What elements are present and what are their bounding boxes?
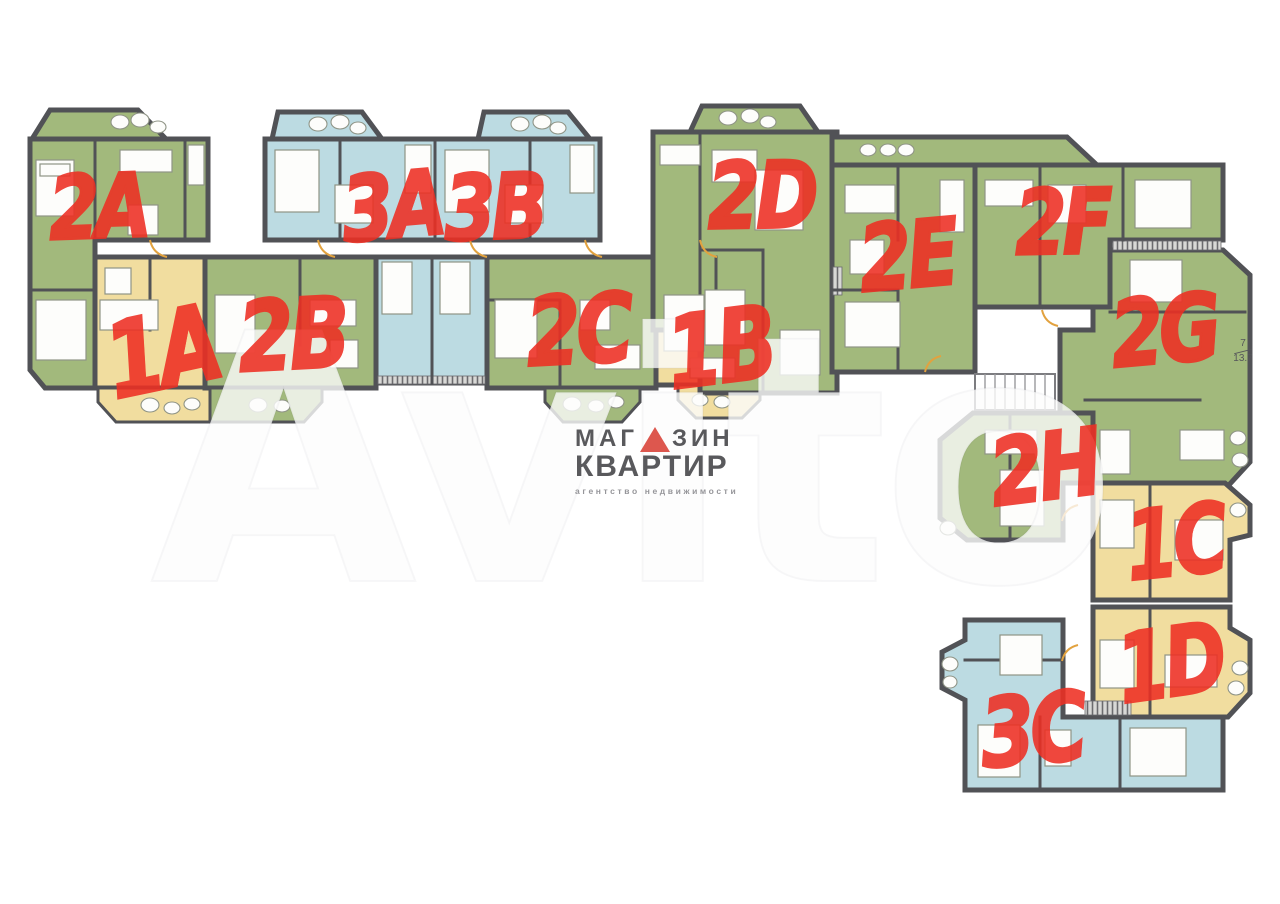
logo-word-prefix: МАГ <box>575 427 638 451</box>
unit-label-2d: 2D <box>707 142 816 251</box>
logo-word-magazin: МАГ ЗИН <box>575 427 715 451</box>
unit-label-3c: 3C <box>976 672 1088 791</box>
logo-word-suffix: ЗИН <box>672 427 734 451</box>
unit-label-2a: 2A <box>47 154 148 260</box>
unit-label-2e: 2E <box>855 199 960 314</box>
unit-label-2h: 2H <box>984 408 1104 527</box>
unit-label-3a: 3A <box>337 150 446 263</box>
logo-word-kvartir: КВАРТИР <box>575 451 715 483</box>
stairwell <box>975 374 1055 410</box>
floor-plan-page: Avito 2A 1A 2B 3A 3B 2C 1B 2D 2E 2F 2G 2… <box>0 0 1280 904</box>
room-area-annotation: 7 13.7 <box>1228 338 1258 364</box>
unit-label-1d: 1D <box>1110 602 1230 726</box>
unit-label-1c: 1C <box>1120 483 1229 603</box>
logo-tagline: агентство недвижимости <box>575 486 715 496</box>
unit-label-2c: 2C <box>524 273 633 388</box>
agency-logo: МАГ ЗИН КВАРТИР агентство недвижимости <box>575 427 715 496</box>
unit-label-2g: 2G <box>1106 273 1221 389</box>
unit-label-1b: 1B <box>660 283 779 412</box>
unit-label-3b: 3B <box>442 154 545 262</box>
logo-triangle-icon <box>640 427 670 452</box>
room-number: 7 <box>1228 338 1258 350</box>
room-area-value: 13.7 <box>1228 353 1258 365</box>
unit-label-2b: 2B <box>235 276 349 394</box>
unit-label-2f: 2F <box>1014 170 1109 277</box>
